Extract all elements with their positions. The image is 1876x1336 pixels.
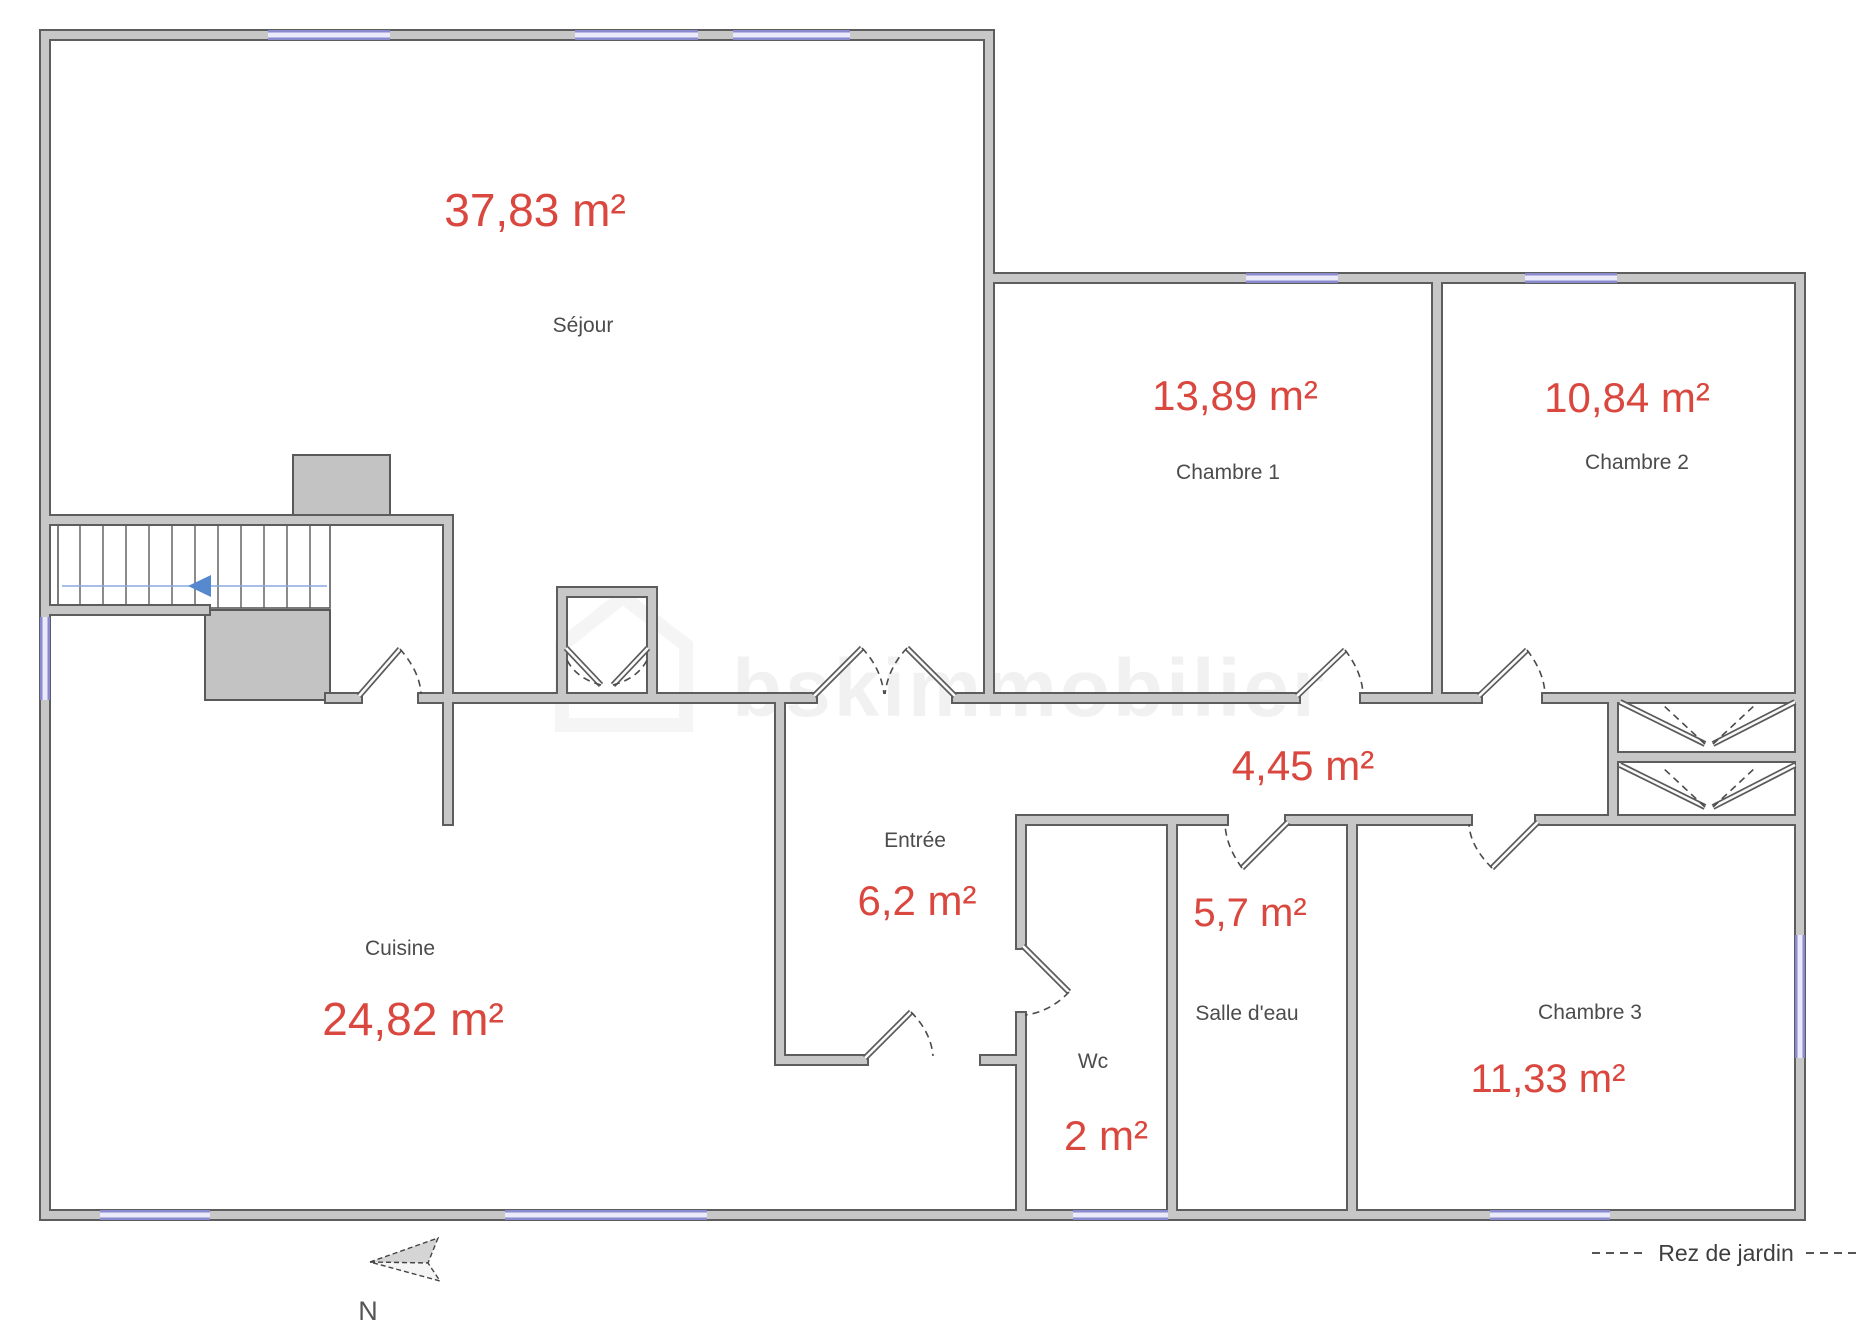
floor-legend: Rez de jardin: [1592, 1240, 1860, 1266]
room-name-salle-d-eau: Salle d'eau: [1195, 1002, 1298, 1025]
room-name-chambre-3: Chambre 3: [1538, 1001, 1642, 1024]
room-area-chambre-3: 11,33 m²: [1471, 1057, 1626, 1101]
floor-plan-page: bskimmobilier 37,83 m² Séjour 13,89 m² C…: [0, 0, 1876, 1336]
room-area-wc: 2 m²: [1064, 1112, 1148, 1159]
room-area-entree: 6,2 m²: [857, 877, 976, 924]
north-arrow-icon-lower: [370, 1262, 440, 1281]
room-area-degagement: 4,45 m²: [1232, 742, 1374, 789]
staircase: [58, 522, 330, 608]
room-area-chambre-2: 10,84 m²: [1544, 374, 1710, 421]
room-name-cuisine: Cuisine: [365, 937, 435, 960]
room-area-sejour: 37,83 m²: [444, 184, 626, 236]
north-compass: N: [358, 1238, 440, 1326]
north-arrow-icon: [370, 1238, 438, 1263]
room-area-chambre-1: 13,89 m²: [1152, 372, 1318, 419]
floor-plan: bskimmobilier 37,83 m² Séjour 13,89 m² C…: [0, 0, 1876, 1336]
room-area-cuisine: 24,82 m²: [322, 993, 504, 1045]
room-area-salle-d-eau: 5,7 m²: [1193, 891, 1306, 935]
room-name-entree: Entrée: [884, 829, 946, 852]
room-name-chambre-2: Chambre 2: [1585, 451, 1689, 474]
duct-block-bottom: [205, 610, 330, 700]
room-name-wc: Wc: [1078, 1050, 1108, 1073]
room-name-chambre-1: Chambre 1: [1176, 461, 1280, 484]
legend-label: Rez de jardin: [1658, 1240, 1794, 1266]
duct-block-top: [293, 455, 390, 517]
room-name-sejour: Séjour: [553, 314, 614, 337]
north-label: N: [358, 1296, 378, 1326]
watermark: bskimmobilier: [562, 597, 1327, 734]
